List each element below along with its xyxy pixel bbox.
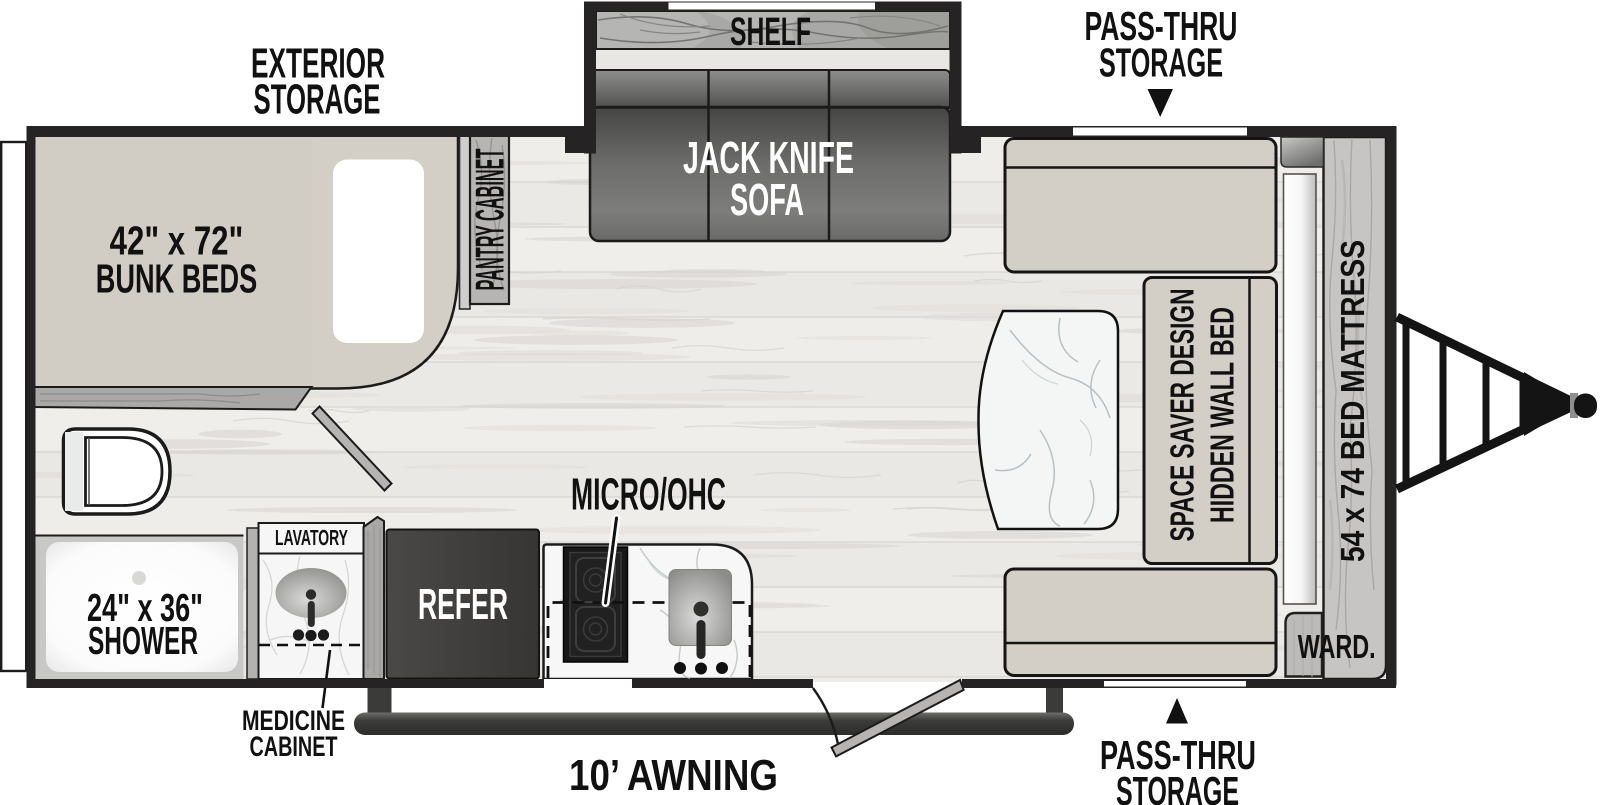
svg-text:CABINET: CABINET xyxy=(250,730,338,762)
svg-text:STORAGE: STORAGE xyxy=(1099,40,1223,86)
svg-text:SOFA: SOFA xyxy=(730,174,804,225)
svg-text:SHELF: SHELF xyxy=(730,10,811,54)
svg-text:10’ AWNING: 10’ AWNING xyxy=(569,752,778,800)
svg-text:LAVATORY: LAVATORY xyxy=(275,525,348,550)
svg-text:STORAGE: STORAGE xyxy=(1116,768,1239,805)
svg-text:STORAGE: STORAGE xyxy=(254,76,381,123)
svg-text:REFER: REFER xyxy=(418,581,508,629)
svg-text:HIDDEN WALL BED: HIDDEN WALL BED xyxy=(1205,307,1242,523)
svg-text:PANTRY CABINET: PANTRY CABINET xyxy=(467,148,512,290)
svg-text:WARD.: WARD. xyxy=(1298,629,1376,666)
svg-text:SHOWER: SHOWER xyxy=(88,620,198,663)
svg-text:MICRO/OHC: MICRO/OHC xyxy=(571,469,726,520)
svg-text:BUNK BEDS: BUNK BEDS xyxy=(96,256,258,302)
svg-text:54 x 74 BED MATTRESS: 54 x 74 BED MATTRESS xyxy=(1335,240,1372,562)
svg-text:SPACE SAVER DESIGN: SPACE SAVER DESIGN xyxy=(1165,289,1202,542)
